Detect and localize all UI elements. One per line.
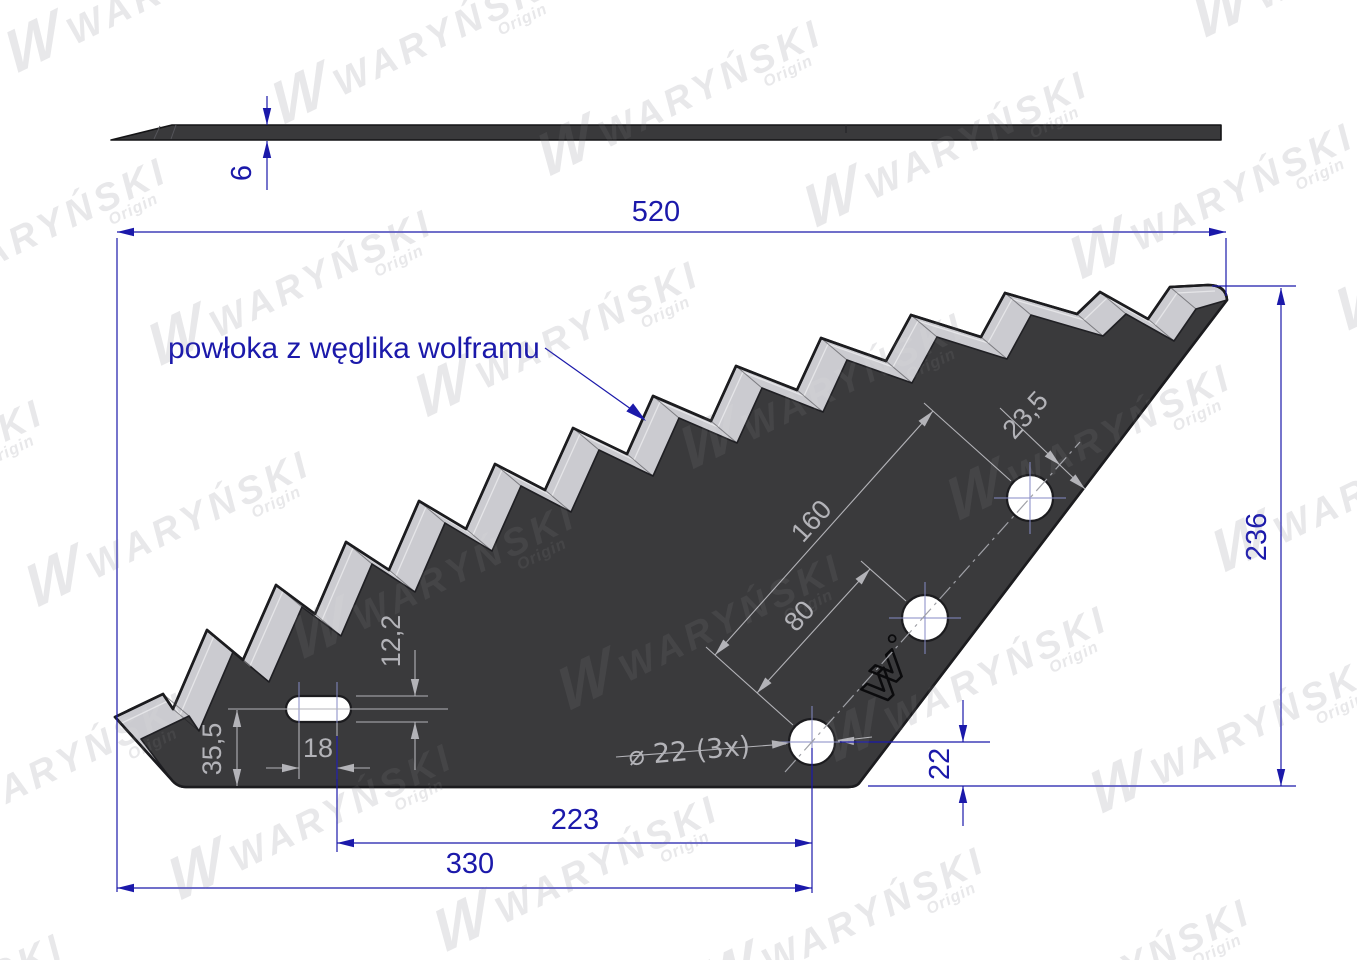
dim-330-label: 330 — [446, 848, 494, 880]
blade-side-profile — [111, 125, 1221, 140]
dim-35-5-label: 35,5 — [197, 723, 227, 776]
drawing-canvas: WWARYŃSKIOriginWWARYŃSKIOriginWWARYŃSKIO… — [0, 0, 1357, 960]
technical-drawing: 6 — [0, 0, 1357, 960]
blade-side-view: 6 — [111, 96, 1221, 190]
dim-thickness-label: 6 — [226, 165, 258, 181]
callout-leader-line — [545, 348, 638, 414]
dim-520-label: 520 — [632, 196, 680, 228]
dim-12-2-label: 12,2 — [376, 615, 406, 668]
carbide-coating-callout: powłoka z węglika wolframu — [168, 332, 540, 365]
dim-18-label: 18 — [303, 733, 333, 763]
dim-22-label: 22 — [924, 748, 956, 780]
dim-236-label: 236 — [1241, 513, 1273, 561]
dim-223-label: 223 — [551, 804, 599, 836]
